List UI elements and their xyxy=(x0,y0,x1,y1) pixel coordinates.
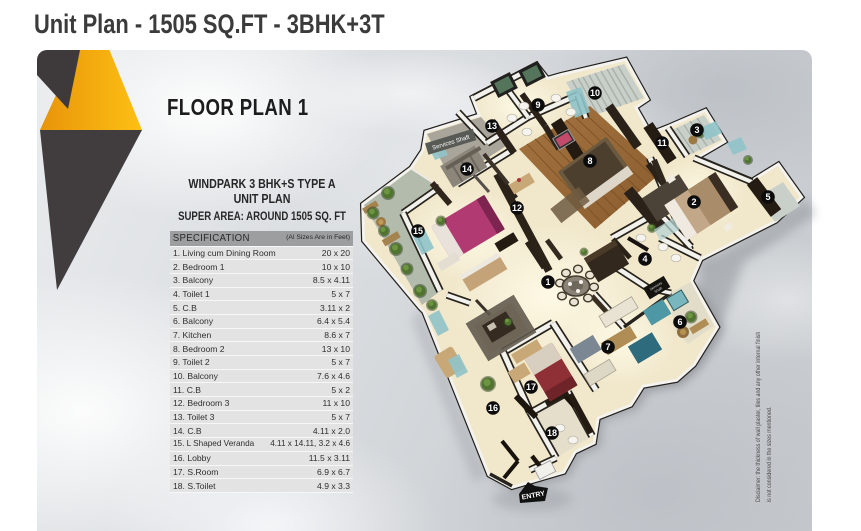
svg-text:7: 7 xyxy=(605,342,610,352)
svg-text:3: 3 xyxy=(694,125,699,135)
svg-text:6: 6 xyxy=(677,317,682,327)
svg-text:15: 15 xyxy=(413,226,423,236)
svg-text:5: 5 xyxy=(765,192,770,202)
svg-text:9: 9 xyxy=(535,100,540,110)
svg-text:1: 1 xyxy=(545,277,550,287)
svg-text:17: 17 xyxy=(526,382,536,392)
svg-text:18: 18 xyxy=(547,428,557,438)
svg-text:10: 10 xyxy=(590,88,600,98)
svg-text:11: 11 xyxy=(657,138,667,148)
svg-text:14: 14 xyxy=(462,164,472,174)
svg-text:8: 8 xyxy=(587,156,592,166)
svg-text:13: 13 xyxy=(487,121,497,131)
svg-text:2: 2 xyxy=(691,197,696,207)
svg-text:4: 4 xyxy=(642,254,647,264)
svg-text:12: 12 xyxy=(512,203,522,213)
svg-text:16: 16 xyxy=(488,403,498,413)
